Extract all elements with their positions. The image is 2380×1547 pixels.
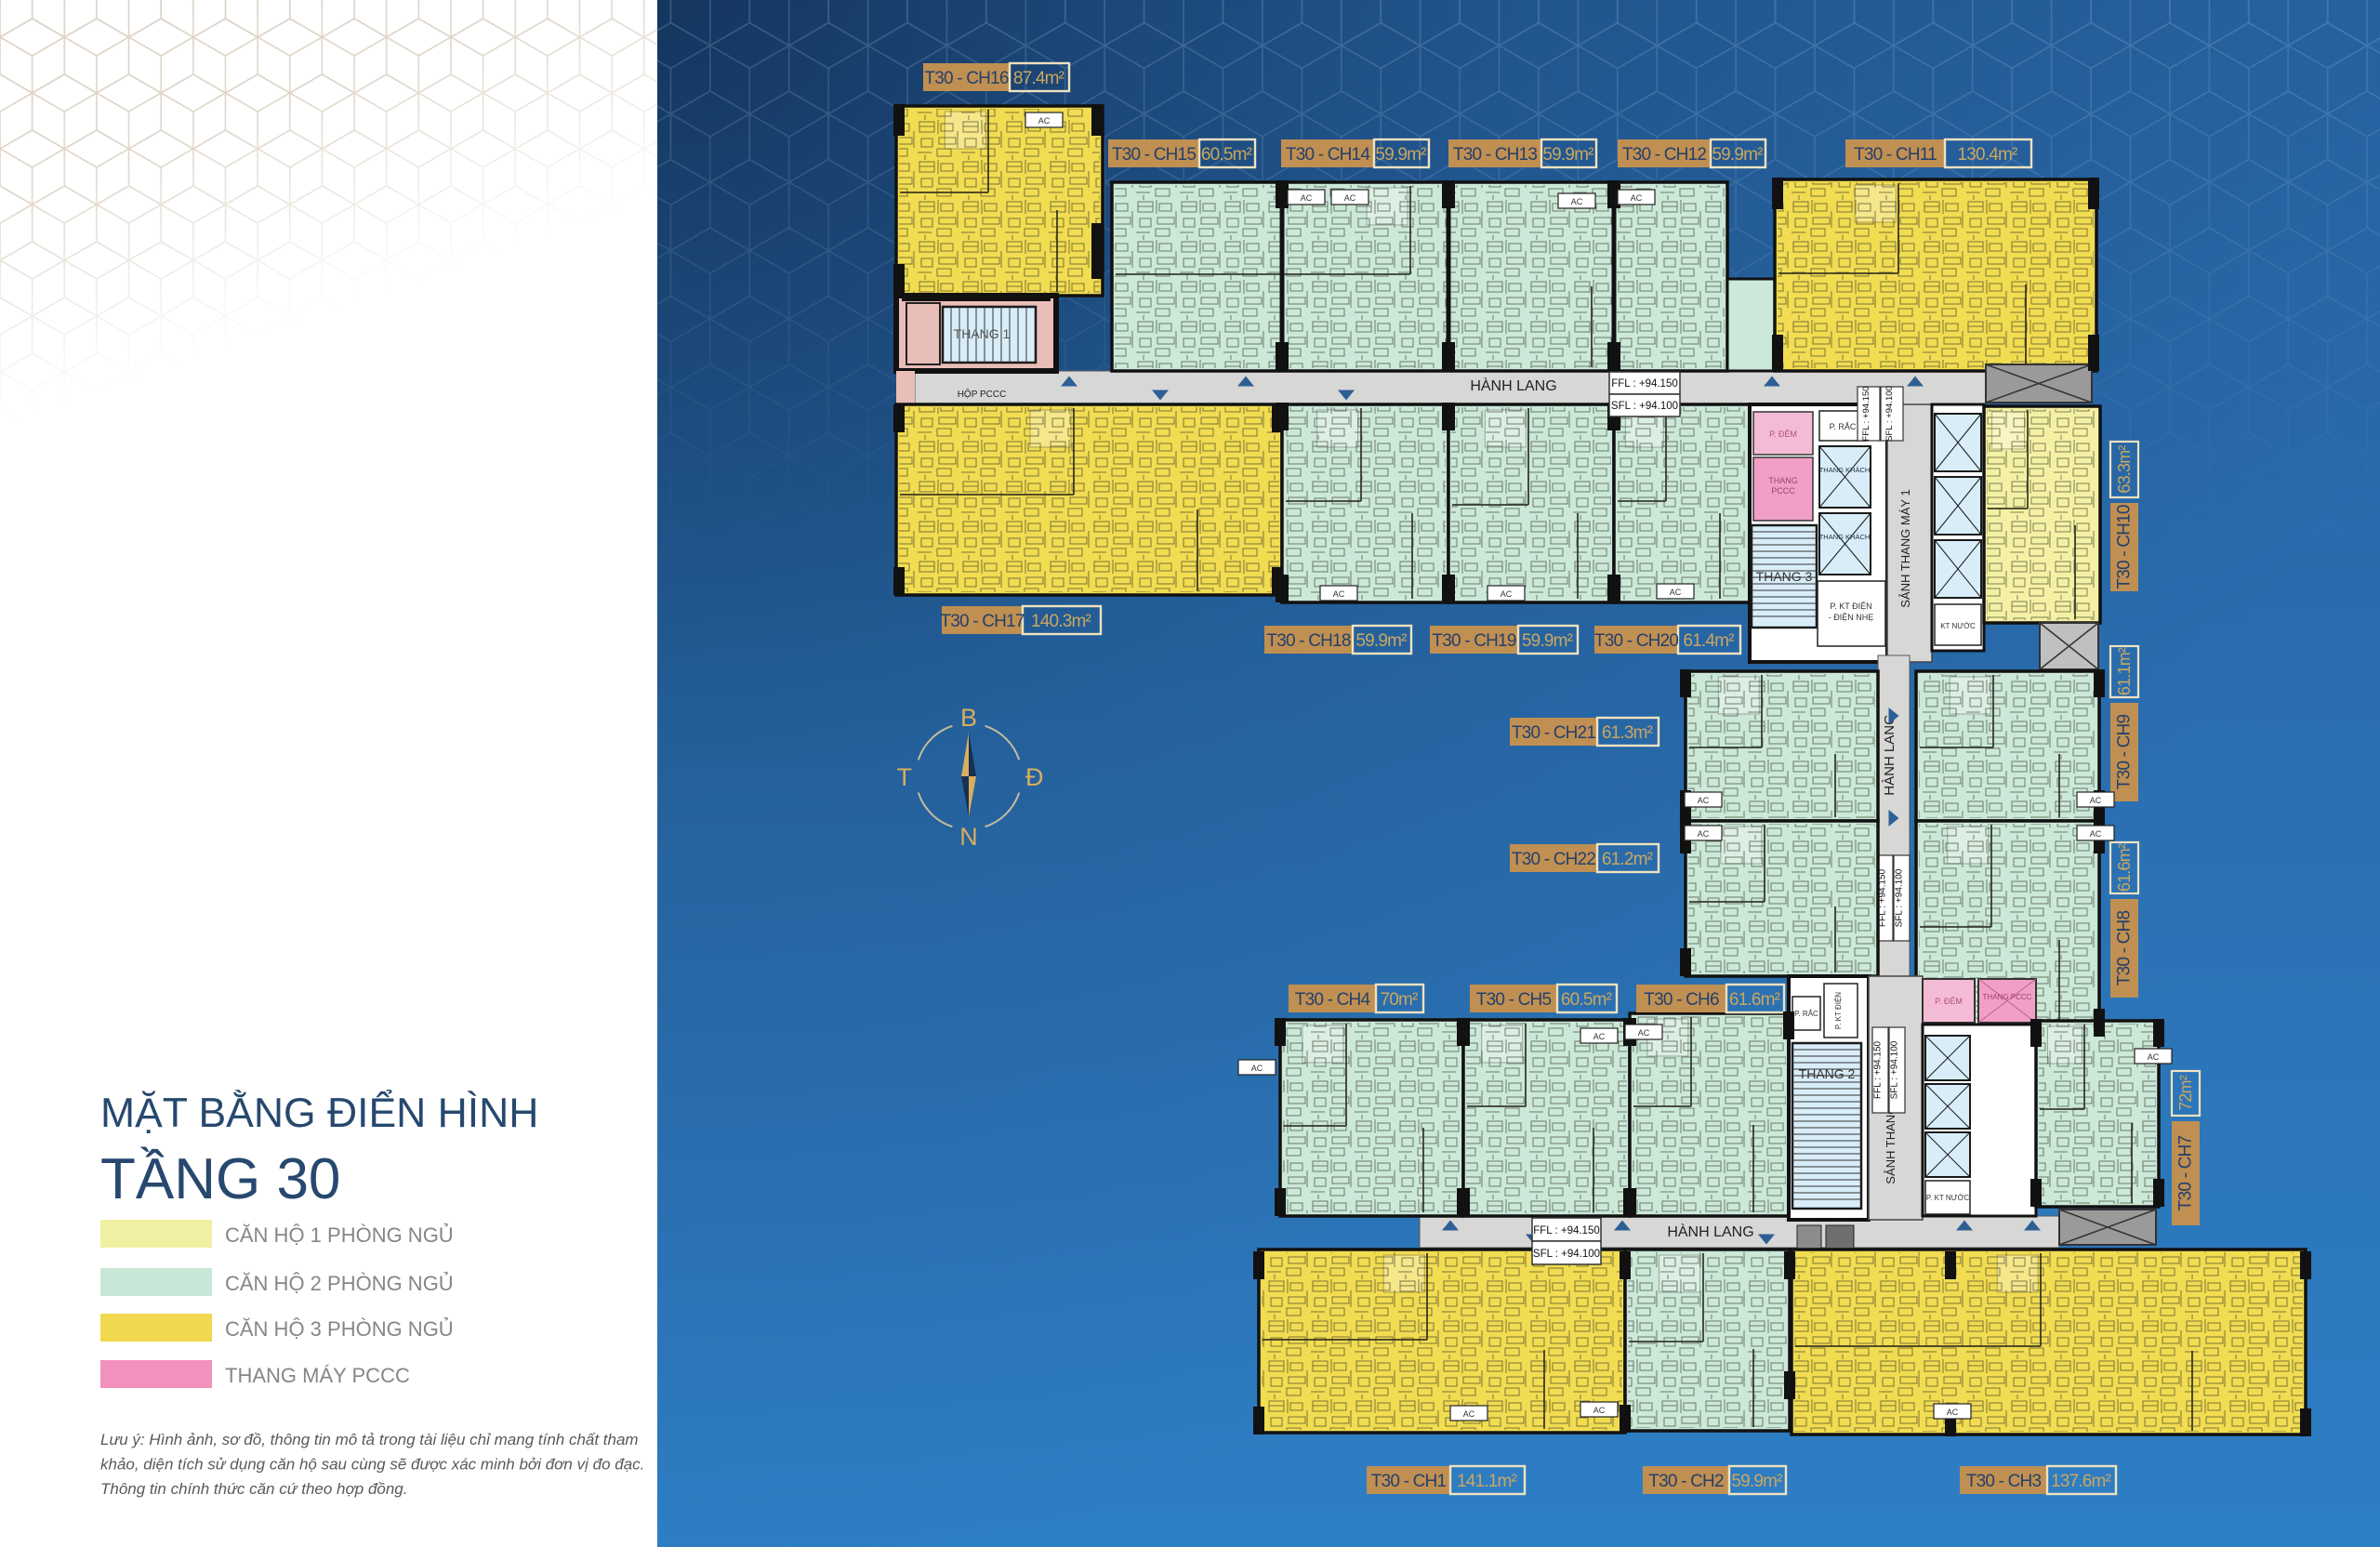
svg-text:T30 - CH21: T30 - CH21	[1512, 723, 1595, 743]
svg-text:AC: AC	[1638, 1028, 1650, 1038]
svg-text:T30 - CH5: T30 - CH5	[1476, 990, 1552, 1010]
svg-text:T30 - CH1: T30 - CH1	[1371, 1472, 1447, 1491]
svg-text:AC: AC	[1670, 588, 1682, 597]
svg-text:SFL : +94.100: SFL : +94.100	[1884, 386, 1895, 442]
svg-text:T30 - CH13: T30 - CH13	[1453, 145, 1537, 165]
svg-text:FFL : +94.150: FFL : +94.150	[1861, 386, 1871, 441]
svg-text:SẢNH THANG MÁY 1: SẢNH THANG MÁY 1	[1898, 489, 1912, 607]
svg-text:61.6m²: 61.6m²	[1729, 990, 1780, 1010]
svg-text:59.9m²: 59.9m²	[1355, 631, 1407, 651]
svg-text:59.9m²: 59.9m²	[1712, 145, 1763, 165]
svg-text:T30 - CH19: T30 - CH19	[1432, 631, 1515, 651]
svg-text:AC: AC	[2090, 829, 2102, 839]
svg-text:T: T	[897, 763, 913, 791]
svg-text:THANG 2: THANG 2	[1799, 1066, 1856, 1081]
svg-text:SFL : +94.100: SFL : +94.100	[1895, 868, 1905, 927]
svg-text:SFL : +94.100: SFL : +94.100	[1533, 1249, 1600, 1260]
svg-text:T30 - CH17: T30 - CH17	[940, 612, 1024, 631]
svg-text:T30 - CH9: T30 - CH9	[2115, 715, 2135, 790]
svg-text:P. ĐÊM: P. ĐÊM	[1935, 997, 1963, 1006]
svg-text:P. ĐÊM: P. ĐÊM	[1769, 430, 1797, 439]
svg-text:KT NƯỚC: KT NƯỚC	[1940, 622, 1976, 630]
svg-text:AC: AC	[1593, 1032, 1606, 1041]
svg-text:AC: AC	[1251, 1064, 1263, 1073]
svg-text:Lưu ý: Hình ảnh, sơ đồ, thông: Lưu ý: Hình ảnh, sơ đồ, thông tin mô tả …	[100, 1431, 639, 1448]
svg-text:AC: AC	[1333, 589, 1345, 599]
svg-text:THANG 1: THANG 1	[954, 326, 1011, 341]
svg-text:T30 - CH18: T30 - CH18	[1266, 631, 1350, 651]
svg-text:T30 - CH8: T30 - CH8	[2115, 911, 2135, 986]
svg-text:FFL : +94.150: FFL : +94.150	[1611, 378, 1678, 390]
svg-text:59.9m²: 59.9m²	[1522, 631, 1573, 651]
svg-text:137.6m²: 137.6m²	[2051, 1472, 2111, 1491]
svg-text:THANG MÁY PCCC: THANG MÁY PCCC	[225, 1364, 410, 1387]
svg-text:T30 - CH15: T30 - CH15	[1112, 145, 1196, 165]
svg-text:AC: AC	[1344, 193, 1356, 203]
svg-text:AC: AC	[1571, 197, 1583, 206]
svg-text:T30 - CH7: T30 - CH7	[2176, 1136, 2196, 1211]
svg-text:AC: AC	[2090, 796, 2102, 805]
svg-text:T30 - CH16: T30 - CH16	[924, 69, 1008, 88]
svg-text:60.5m²: 60.5m²	[1201, 145, 1252, 165]
svg-text:AC: AC	[1593, 1406, 1606, 1415]
svg-text:T30 - CH4: T30 - CH4	[1295, 990, 1371, 1010]
svg-text:THANG: THANG	[1768, 476, 1798, 485]
svg-text:THANG KHÁCH: THANG KHÁCH	[1819, 466, 1871, 474]
svg-text:FFL : +94.150: FFL : +94.150	[1873, 1040, 1884, 1099]
svg-text:AC: AC	[1463, 1409, 1475, 1419]
svg-text:P. RẮC: P. RẮC	[1830, 422, 1857, 431]
svg-text:87.4m²: 87.4m²	[1013, 69, 1064, 88]
svg-text:70m²: 70m²	[1380, 990, 1418, 1010]
svg-text:72m²: 72m²	[2176, 1075, 2195, 1111]
svg-text:AC: AC	[1631, 193, 1643, 203]
svg-text:HÀNH LANG: HÀNH LANG	[1667, 1223, 1753, 1240]
svg-text:T30 - CH11: T30 - CH11	[1854, 145, 1937, 165]
svg-text:61.3m²: 61.3m²	[1602, 723, 1653, 743]
svg-text:SFL : +94.100: SFL : +94.100	[1890, 1040, 1900, 1099]
svg-text:59.9m²: 59.9m²	[1542, 145, 1593, 165]
svg-text:130.4m²: 130.4m²	[1957, 145, 2017, 165]
svg-text:59.9m²: 59.9m²	[1731, 1472, 1782, 1491]
svg-text:141.1m²: 141.1m²	[1457, 1472, 1517, 1491]
svg-text:AC: AC	[1698, 796, 1710, 805]
svg-text:P. KT ĐIỆN: P. KT ĐIỆN	[1830, 602, 1871, 611]
svg-text:61.1m²: 61.1m²	[2115, 647, 2134, 695]
svg-text:61.2m²: 61.2m²	[1602, 850, 1653, 869]
svg-text:FFL : +94.150: FFL : +94.150	[1533, 1225, 1600, 1236]
svg-text:THANG PCCC: THANG PCCC	[1983, 993, 2032, 1001]
svg-text:T30 - CH2: T30 - CH2	[1648, 1472, 1724, 1491]
svg-text:T30 - CH3: T30 - CH3	[1966, 1472, 2042, 1491]
svg-text:59.9m²: 59.9m²	[1375, 145, 1426, 165]
svg-text:T30 - CH6: T30 - CH6	[1644, 990, 1719, 1010]
svg-text:CĂN HỘ 3 PHÒNG NGỦ: CĂN HỘ 3 PHÒNG NGỦ	[225, 1317, 454, 1341]
svg-text:SFL : +94.100: SFL : +94.100	[1611, 401, 1678, 412]
svg-text:khảo, diện tích sử dụng căn hộ: khảo, diện tích sử dụng căn hộ sau cùng …	[100, 1456, 644, 1474]
svg-text:61.6m²: 61.6m²	[2115, 843, 2134, 892]
svg-text:N: N	[959, 823, 978, 851]
svg-text:- ĐIỆN NHẸ: - ĐIỆN NHẸ	[1829, 613, 1874, 622]
svg-text:P. KT ĐIỆN: P. KT ĐIỆN	[1834, 992, 1843, 1029]
svg-text:T30 - CH12: T30 - CH12	[1622, 145, 1706, 165]
svg-text:P. KT NƯỚC: P. KT NƯỚC	[1926, 1194, 1970, 1202]
svg-text:T30 - CH20: T30 - CH20	[1594, 631, 1678, 651]
svg-text:140.3m²: 140.3m²	[1031, 612, 1091, 631]
svg-text:Thông tin chính thức căn cứ th: Thông tin chính thức căn cứ theo hợp đồn…	[100, 1480, 407, 1498]
svg-text:T30 - CH10: T30 - CH10	[2115, 505, 2135, 588]
svg-text:HÀNH LANG: HÀNH LANG	[1470, 377, 1556, 394]
svg-text:CĂN HỘ 2 PHÒNG NGỦ: CĂN HỘ 2 PHÒNG NGỦ	[225, 1272, 454, 1295]
svg-text:PCCC: PCCC	[1771, 486, 1795, 496]
svg-text:HỘP PCCC: HỘP PCCC	[958, 388, 1007, 400]
svg-text:THANG 3: THANG 3	[1756, 569, 1813, 584]
svg-text:TẦNG 30: TẦNG 30	[100, 1147, 340, 1211]
svg-text:T30 - CH14: T30 - CH14	[1286, 145, 1370, 165]
svg-text:AC: AC	[1301, 193, 1313, 203]
svg-text:CĂN HỘ 1 PHÒNG NGỦ: CĂN HỘ 1 PHÒNG NGỦ	[225, 1223, 454, 1247]
svg-text:AC: AC	[1038, 116, 1051, 126]
svg-text:Đ: Đ	[1025, 763, 1044, 791]
svg-text:60.5m²: 60.5m²	[1561, 990, 1612, 1010]
svg-text:AC: AC	[1698, 829, 1710, 839]
svg-text:61.4m²: 61.4m²	[1683, 631, 1734, 651]
svg-text:HÀNH LANG: HÀNH LANG	[1882, 714, 1897, 796]
svg-text:AC: AC	[1947, 1408, 1959, 1417]
svg-text:P. RẮC: P. RẮC	[1794, 1010, 1818, 1018]
svg-text:AC: AC	[1501, 589, 1513, 599]
svg-text:THANG KHÁCH: THANG KHÁCH	[1819, 533, 1871, 541]
svg-text:AC: AC	[2148, 1052, 2160, 1062]
svg-text:MẶT BẰNG ĐIỂN HÌNH: MẶT BẰNG ĐIỂN HÌNH	[100, 1089, 538, 1136]
svg-text:T30 - CH22: T30 - CH22	[1512, 850, 1595, 869]
svg-text:B: B	[960, 704, 977, 732]
svg-text:63.3m²: 63.3m²	[2115, 445, 2134, 494]
